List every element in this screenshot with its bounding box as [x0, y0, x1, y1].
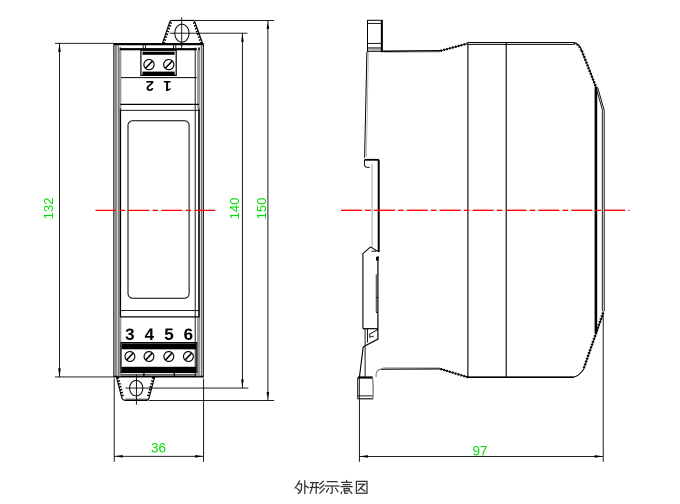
svg-text:3: 3	[125, 325, 134, 344]
svg-text:5: 5	[164, 325, 173, 344]
svg-text:150: 150	[254, 198, 269, 220]
svg-text:140: 140	[227, 198, 242, 220]
svg-text:4: 4	[145, 325, 155, 344]
svg-text:36: 36	[151, 440, 166, 455]
svg-text:2: 2	[146, 77, 154, 93]
svg-text:1: 1	[163, 77, 171, 93]
svg-text:6: 6	[184, 325, 193, 344]
svg-text:132: 132	[41, 198, 56, 220]
svg-text:97: 97	[472, 443, 487, 458]
